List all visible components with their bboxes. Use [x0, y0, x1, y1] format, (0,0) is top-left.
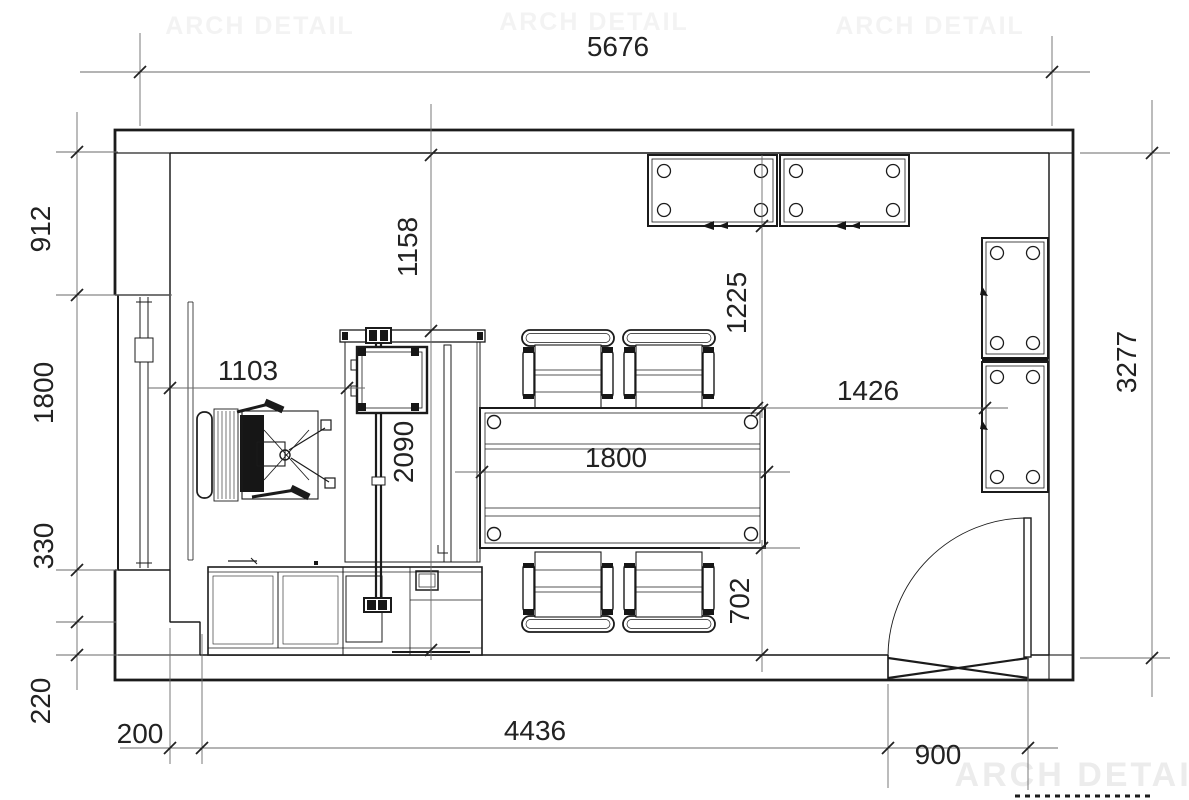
- meeting-chair: [623, 330, 715, 410]
- floor-plan-page: ARCH DETAIL ARCH DETAIL ARCH DETAIL ARCH…: [0, 0, 1189, 800]
- equipment-corner-bracket: [411, 403, 419, 411]
- door: [888, 518, 1031, 678]
- chair-backrest: [197, 412, 212, 498]
- desk-top-rail: [340, 330, 485, 342]
- watermark-brand: ARCH DETAIL: [955, 756, 1189, 794]
- equipment-corner-bracket: [411, 348, 419, 356]
- equipment-corner-bracket: [358, 403, 366, 411]
- office-chair: [197, 402, 335, 501]
- counter-outline: [208, 567, 482, 655]
- watermark-row-right: ARCH DETAIL: [835, 12, 1025, 40]
- countertop-object: [314, 561, 318, 565]
- chair-caster: [321, 420, 331, 430]
- watermark-row-left: ARCH DETAIL: [165, 12, 355, 40]
- chair-caster: [325, 478, 335, 488]
- dim-table-to-counter: 702: [724, 578, 755, 625]
- meeting-table: [480, 408, 765, 548]
- dim-left-corner: 220: [25, 678, 56, 725]
- partition-top-cap: [380, 330, 388, 341]
- dim-left-pier: 912: [25, 206, 56, 253]
- wall-cabinets-top: [648, 155, 909, 230]
- chair-seat-pad: [240, 415, 264, 492]
- wall-corner-bottom-left: [115, 570, 200, 655]
- window-left: [118, 295, 193, 570]
- equipment-corner-bracket: [358, 348, 366, 356]
- table-leg: [488, 416, 501, 429]
- door-swing-arc: [888, 518, 1027, 657]
- dim-left-sill: 330: [28, 523, 59, 570]
- brand-logo-icon: [1056, 692, 1091, 757]
- brand-logo-icon: [1084, 706, 1112, 757]
- whiteboard-panel: [444, 345, 451, 562]
- desk-rail-cap: [342, 332, 348, 340]
- dim-left-window: 1800: [28, 362, 59, 424]
- dim-bottom-door: 900: [915, 739, 962, 770]
- table-outline: [480, 408, 765, 548]
- counter: [208, 558, 482, 655]
- chair-armrest-pad: [265, 402, 283, 410]
- dim-partition: 2090: [388, 421, 419, 483]
- dim-window-to-desk: 1103: [218, 355, 278, 386]
- dim-top-total: 5676: [587, 31, 649, 62]
- table-leg: [745, 528, 758, 541]
- window-mullion: [135, 338, 153, 362]
- table-leg: [488, 528, 501, 541]
- dim-cabinet-to-table: 1225: [721, 272, 752, 334]
- partition-top-cap: [369, 330, 377, 341]
- partition-connector: [372, 477, 385, 485]
- chair-leg: [291, 458, 329, 482]
- meeting-chair: [522, 552, 614, 632]
- dim-wall-to-desk: 1158: [392, 217, 423, 277]
- dim-table-to-cabinet: 1426: [837, 375, 899, 406]
- floor-plan-canvas: ARCH DETAIL ARCH DETAIL ARCH DETAIL ARCH…: [0, 0, 1189, 800]
- wall-right: [1049, 153, 1073, 680]
- wall-top: [115, 130, 1073, 153]
- desk-rail-cap: [477, 332, 483, 340]
- meeting-chair: [522, 330, 614, 410]
- meeting-chair: [623, 552, 715, 632]
- wall-cabinets-right: [980, 238, 1048, 492]
- dim-bottom-offset: 200: [117, 718, 164, 749]
- wall-bottom-right: [1028, 655, 1073, 680]
- partition-bottom-cap: [367, 600, 376, 610]
- chair-armrest-pad: [291, 488, 309, 497]
- partition-bottom-cap: [378, 600, 387, 610]
- table-leg: [745, 416, 758, 429]
- wall-pier-top-left: [115, 153, 170, 295]
- door-leaf: [1024, 518, 1031, 657]
- chair-leg: [289, 428, 325, 450]
- wall-bottom-left: [115, 655, 888, 680]
- dim-bottom-span: 4436: [504, 715, 566, 746]
- dim-right-total: 3277: [1111, 331, 1142, 393]
- dim-table-length: 1800: [585, 442, 647, 473]
